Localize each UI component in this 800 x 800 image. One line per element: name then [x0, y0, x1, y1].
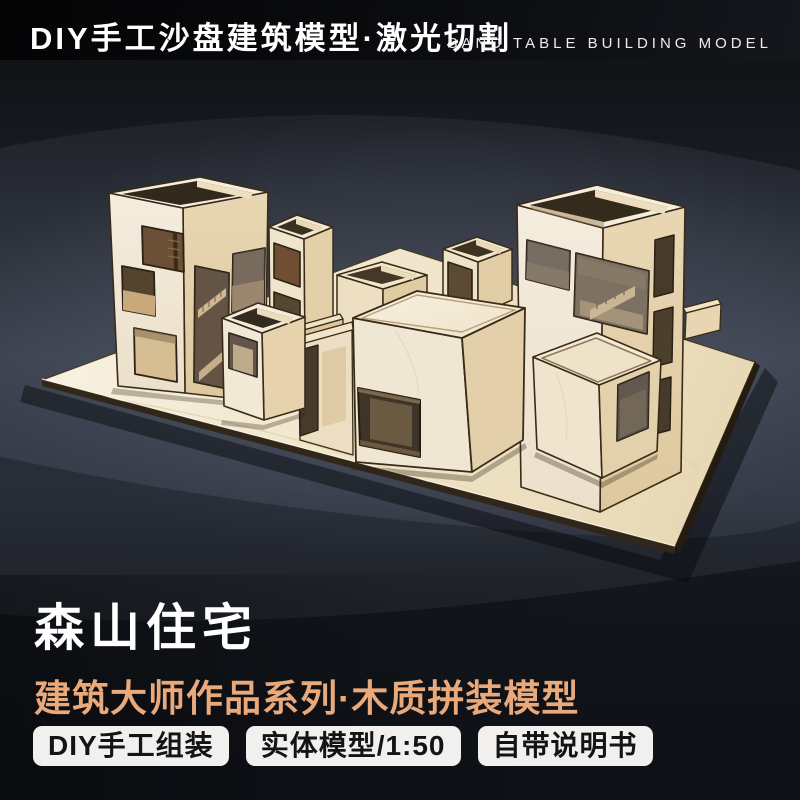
building-center-cube — [350, 291, 527, 482]
badge-manual: 自带说明书 — [478, 726, 653, 766]
product-title: 森山住宅 — [34, 588, 258, 660]
badge-diy-assembly: DIY手工组装 — [33, 726, 229, 766]
product-series: 建筑大师作品系列·木质拼装模型 — [34, 668, 579, 722]
product-poster: DIY手工沙盘建筑模型·激光切割 SAND TABLE BUILDING MOD… — [0, 0, 800, 800]
building-front-right-box — [533, 333, 661, 488]
header-bar: DIY手工沙盘建筑模型·激光切割 SAND TABLE BUILDING MOD… — [0, 0, 800, 60]
badge-row: DIY手工组装实体模型/1:50自带说明书 — [33, 726, 670, 766]
header-title-en: SAND TABLE BUILDING MODEL — [447, 35, 772, 52]
header-title-cn: DIY手工沙盘建筑模型·激光切割 — [30, 13, 512, 58]
badge-scale: 实体模型/1:50 — [246, 726, 461, 766]
